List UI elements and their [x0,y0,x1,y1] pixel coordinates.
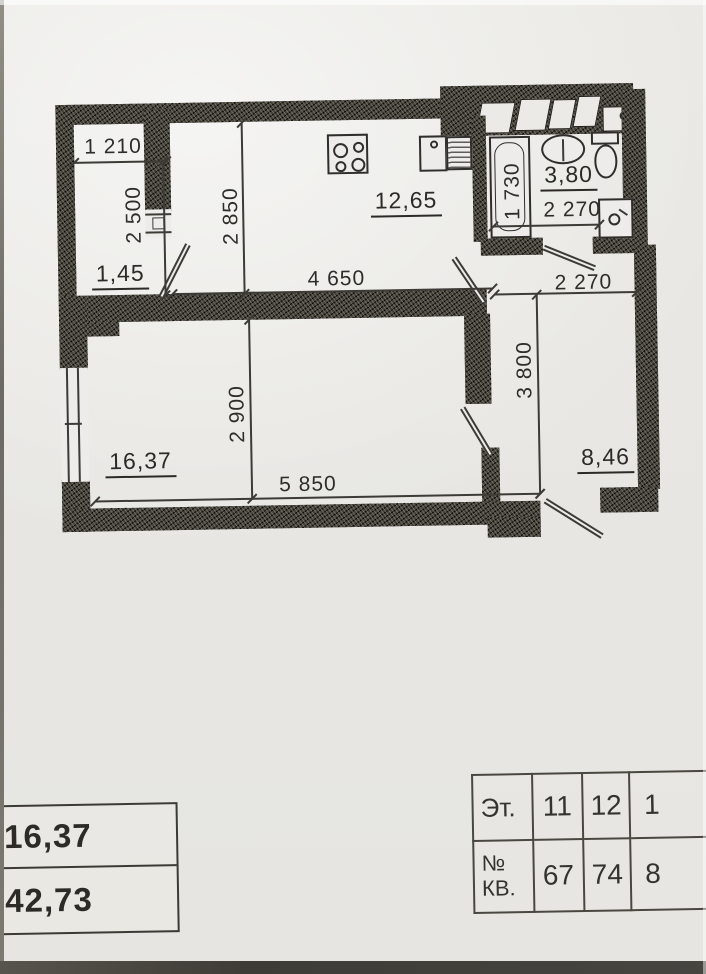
dim-label-tub-length: 1 730 [500,162,525,220]
wall-kitchen-bath [472,116,488,242]
apartment-value-cell: 8 [631,837,706,910]
wall-living-hall-upper [464,314,492,404]
loggia-window [145,209,171,237]
dim-label-loggia-depth: 2 500 [122,186,147,244]
photo-edge-top [0,0,706,5]
kitchen-sink-icon [419,135,448,171]
window-mullion [65,423,82,425]
area-label-kitchen: 12,65 [370,186,441,217]
floor-apartment-table: Эт. 11 12 1 № КВ. 67 74 8 [471,770,706,914]
burner-icon [333,143,348,158]
area-summary-table: 16,37 42,73 [0,802,180,936]
table-row-apartments: № КВ. 67 74 8 [473,837,706,913]
apartment-header-cell: № КВ. [473,840,534,913]
dim-label-living-depth: 2 900 [225,385,250,443]
wall-left-upper [56,123,77,298]
wall-kitchen-living [87,289,487,323]
window-pane-line [145,213,171,215]
wall-hall-right [634,245,660,489]
apartment-header-line1: № [481,851,532,877]
scanned-floor-plan-photo: 1 210 2 500 2 850 4 650 1 730 2 270 2 27… [0,0,706,974]
dim-label-living-width: 5 850 [279,472,337,497]
living-area-value: 16,37 [4,817,92,857]
faucet-icon [430,140,438,148]
wall-living-bottom-step [488,517,541,538]
floor-value-cell: 11 [532,773,583,840]
floor-value-cell: 12 [582,772,631,839]
sink-tap-line [562,139,564,161]
wall-top [55,98,445,125]
burner-icon [335,161,346,172]
area-label-bathroom: 3,80 [540,161,597,192]
dim-label-hall-depth: 3 800 [512,341,537,399]
washer-drum-icon [608,213,620,225]
photo-edge-bottom [0,961,706,974]
burner-icon [353,142,364,153]
washer-mark [619,209,628,216]
dimension-line [493,224,599,228]
dim-label-loggia-width: 1 210 [84,135,142,160]
bathroom-door-swing [543,245,596,271]
wall-bath-bottom-left [481,238,543,256]
wall-living-hall-lower [481,447,500,504]
dim-label-hall-width: 2 270 [554,270,612,295]
total-area-value: 42,73 [5,881,93,921]
toilet-bowl-icon [594,144,618,178]
entrance-door-swing [544,498,604,539]
vent-shaft-block [440,83,634,136]
window-pane-line [146,231,172,233]
floor-header-cell: Эт. [472,774,533,841]
wall-hall-bottom [600,487,658,513]
area-label-loggia: 1,45 [92,260,149,291]
photo-edge-left [0,0,4,974]
kitchen-drainboard-icon [446,136,473,170]
table-row: 42,73 [0,864,178,934]
apartment-value-cell: 74 [583,838,632,911]
area-label-living-room: 16,37 [105,447,176,478]
vent-duct [514,98,551,131]
floor-value-cell: 1 [629,771,706,838]
table-row: 16,37 [0,804,177,868]
stove-icon [327,134,369,175]
table-row-floors: Эт. 11 12 1 [472,771,706,841]
living-room-window [60,368,90,482]
wall-step [87,322,119,337]
vent-duct [572,96,601,128]
apartment-value-cell: 67 [533,839,584,912]
drawing-layer: 1 210 2 500 2 850 4 650 1 730 2 270 2 27… [0,0,706,974]
dim-label-kitchen-depth: 2 850 [219,187,244,245]
dim-label-kitchen-width: 4 650 [307,267,365,292]
living-room-door-swing [460,407,493,456]
apartment-header-line2: КВ. [482,876,533,902]
washing-machine-icon [598,198,634,239]
wall-living-bottom [62,501,540,532]
wall-left-lower-a [59,296,88,370]
toilet-tank-icon [591,131,619,144]
burner-icon [351,158,365,172]
area-label-hall: 8,46 [577,443,634,474]
dim-label-bath-width: 2 270 [543,198,601,223]
